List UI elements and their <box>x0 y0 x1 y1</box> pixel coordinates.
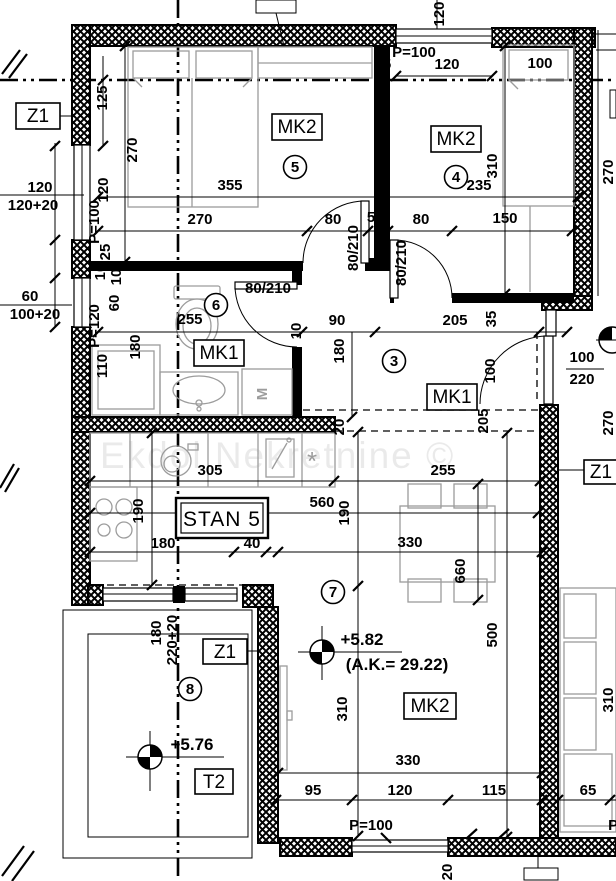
dim-205-rot: 205 <box>475 408 492 433</box>
dim-270-rot-edge-a: 270 <box>600 159 616 184</box>
dim-180: 180 <box>150 535 175 552</box>
dim-560: 560 <box>309 494 334 511</box>
dim-5a: 5 <box>367 209 375 226</box>
dim-10-rot-c: 10 <box>288 323 305 340</box>
code-mk1-hall: MK1 <box>432 387 471 408</box>
door-label-bathroom: 80/210 <box>245 280 291 297</box>
zone-label-z1-terrace: Z1 <box>214 642 236 663</box>
dim-310-rot-edge: 310 <box>600 687 616 712</box>
dim-10-rot-b: 10 <box>108 269 125 286</box>
dim-left-60: 60 <box>22 288 39 305</box>
dim-270-rot: 270 <box>124 137 141 162</box>
dim-220-20-rot: 220+20 <box>164 615 181 665</box>
dim-180-rot-b: 180 <box>331 338 348 363</box>
dim-bath-255: 255 <box>177 311 202 328</box>
level-terrace: +5.76 <box>170 735 213 754</box>
door-height-220: 220 <box>569 371 594 388</box>
room-number-bedroom1: 5 <box>291 159 299 176</box>
code-mk2-bedroom2: MK2 <box>436 129 475 150</box>
room-number-terrace: 8 <box>186 681 194 698</box>
dim-270-rot-edge-b: 270 <box>600 410 616 435</box>
room-number-bathroom: 6 <box>212 297 220 314</box>
zone-label-z1-topleft: Z1 <box>27 106 49 127</box>
dim-110-rot: 110 <box>94 354 111 378</box>
dim-120-rot: 120 <box>95 177 112 202</box>
dim-500-rot: 500 <box>484 622 501 647</box>
dim-205: 205 <box>442 312 467 329</box>
dim-left-120: 120 <box>27 179 52 196</box>
dim-65: 65 <box>580 782 597 799</box>
floorplan-page: Ekdol Nekretnine © <box>0 0 616 881</box>
floorplan-drawing: Ekdol Nekretnine © <box>0 0 616 881</box>
dim-bottom-p100: P=100 <box>349 817 393 834</box>
dim-235: 235 <box>466 177 491 194</box>
dim-270: 270 <box>187 211 212 228</box>
dim-90: 90 <box>329 312 346 329</box>
code-mk1-bathroom: MK1 <box>199 343 238 364</box>
door-label-bedroom2: 80/210 <box>393 240 410 286</box>
dim-660-rot: 660 <box>452 558 469 583</box>
code-mk2-bedroom1: MK2 <box>277 117 316 138</box>
door-leaf-loggia <box>544 336 553 404</box>
dim-125-rot: 125 <box>94 85 111 110</box>
dim-hall-255: 255 <box>430 462 455 479</box>
dim-310-rot-b: 310 <box>334 696 351 721</box>
dim-190-rot-a: 190 <box>130 498 147 523</box>
level-living: +5.82 <box>340 630 383 649</box>
dim-right-p100-clipped: P=100 <box>608 817 616 834</box>
dim-left-100-20: 100+20 <box>10 306 60 323</box>
dim-5: 5 <box>383 56 391 73</box>
room-number-living: 7 <box>329 584 337 601</box>
dim-35-rot: 35 <box>483 311 500 328</box>
dim-330b: 330 <box>395 752 420 769</box>
dim-150: 150 <box>492 210 517 227</box>
dim-5b: 5 <box>379 218 387 235</box>
dim-left-120-20: 120+20 <box>8 197 58 214</box>
dim-25-rot: 25 <box>97 244 114 261</box>
window-p120-rot: P=120 <box>86 304 103 348</box>
dim-180-rot-a: 180 <box>127 334 144 359</box>
stove-symbol: * <box>307 446 317 476</box>
dim-95: 95 <box>305 782 322 799</box>
room-number-bedroom2: 4 <box>452 169 461 186</box>
dim-window-p100: P=100 <box>392 44 436 61</box>
room-number-hall: 3 <box>390 353 398 370</box>
dim-20-rot-b: 20 <box>439 864 456 881</box>
dim-305: 305 <box>197 462 222 479</box>
dim-190-rot-b: 190 <box>336 500 353 525</box>
dim-330a: 330 <box>397 534 422 551</box>
door-width-100: 100 <box>569 349 594 366</box>
dim-pillow-100: 100 <box>527 55 552 72</box>
level-living-ak: (A.K.= 29.22) <box>346 655 449 674</box>
dim-115: 115 <box>482 782 506 799</box>
dim-10-rot-a: 10 <box>92 264 109 281</box>
dim-bottom-120: 120 <box>387 782 412 799</box>
zone-label-z1-right: Z1 <box>590 462 612 483</box>
washing-machine-label: M <box>254 388 271 401</box>
code-mk2-living: MK2 <box>410 696 449 717</box>
apartment-title: STAN 5 <box>183 508 261 531</box>
window-p100-rot: P=100 <box>86 200 103 244</box>
dim-60-rot: 60 <box>106 295 123 312</box>
dim-80b: 80 <box>413 211 430 228</box>
dim-310-rot: 310 <box>484 153 501 178</box>
unit-label-t2: T2 <box>203 772 225 793</box>
dim-top-120-rot: 120 <box>431 1 448 26</box>
watermark-text: Ekdol Nekretnine © <box>100 435 455 476</box>
dim-355: 355 <box>217 177 242 194</box>
dim-door-100-rot: 100 <box>482 358 499 383</box>
dim-terrace-180-rot: 180 <box>148 620 165 645</box>
dim-120: 120 <box>434 56 459 73</box>
dim-80a: 80 <box>325 211 342 228</box>
dim-20-rot-a: 20 <box>331 419 348 436</box>
door-label-bedroom1: 80/210 <box>345 225 362 271</box>
